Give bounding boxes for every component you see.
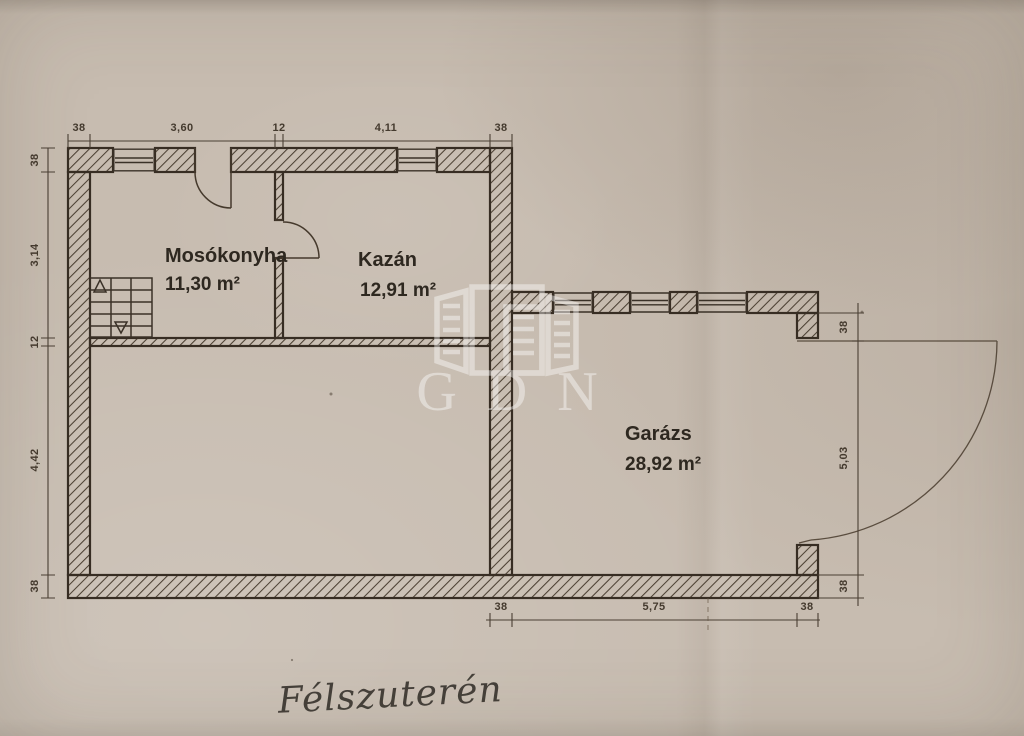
garage-door-swing-arc bbox=[811, 341, 997, 540]
room-label-kazan: Kazán bbox=[358, 249, 417, 271]
dim-label: 12 bbox=[29, 335, 41, 348]
entry-door-swing-arc bbox=[195, 172, 231, 208]
wall-garage-top-pier-2 bbox=[593, 292, 630, 313]
wall-garage-top-corner bbox=[747, 292, 818, 313]
wall-exterior-bottom bbox=[68, 575, 818, 598]
dimension-chain-top: 38 3,60 12 4,11 38 bbox=[68, 122, 512, 148]
paper-speck bbox=[330, 393, 333, 396]
wall-top-middle bbox=[231, 148, 397, 172]
dim-label: 38 bbox=[838, 320, 850, 333]
dim-label: 38 bbox=[29, 579, 41, 592]
room-label-mosokonyha: Mosókonyha bbox=[165, 245, 288, 267]
wall-exterior-left bbox=[68, 172, 90, 575]
watermark-text: GDN bbox=[416, 361, 627, 423]
garage-window-2 bbox=[630, 293, 670, 312]
garage-door bbox=[797, 341, 997, 543]
dimension-chain-bottom: 38 5,75 38 bbox=[486, 598, 820, 633]
dim-label: 4,42 bbox=[29, 448, 41, 471]
window-1 bbox=[113, 149, 155, 171]
entry-door bbox=[195, 148, 231, 208]
scanned-paper-background: 38 3,60 12 4,11 38 38 3,14 12 4,42 38 38… bbox=[0, 0, 1024, 736]
floor-plan-drawing: 38 3,60 12 4,11 38 38 3,14 12 4,42 38 38… bbox=[0, 0, 1024, 736]
wall-garage-right-stub-bottom bbox=[797, 545, 818, 575]
stairs-down-arrow bbox=[115, 322, 127, 333]
wall-top-corner-left bbox=[68, 148, 113, 172]
dim-label: 38 bbox=[494, 601, 507, 613]
dimension-chain-right: 38 5,03 38 bbox=[818, 303, 864, 606]
wall-partition-horizontal bbox=[90, 338, 490, 346]
dim-label: 38 bbox=[838, 579, 850, 592]
wall-garage-right-stub-top bbox=[797, 313, 818, 338]
paper-speck bbox=[291, 659, 293, 661]
kazan-door-swing-arc bbox=[283, 222, 319, 258]
paper-speck bbox=[861, 311, 864, 314]
wall-top-pier-1 bbox=[155, 148, 195, 172]
dimension-chain-left: 38 3,14 12 4,42 38 bbox=[29, 148, 55, 598]
dim-label: 38 bbox=[29, 153, 41, 166]
room-label-garazs: Garázs bbox=[625, 423, 692, 445]
interior-walls bbox=[90, 172, 490, 346]
staircase bbox=[90, 278, 152, 337]
dim-label: 38 bbox=[800, 601, 813, 613]
wall-garage-top-pier-3 bbox=[670, 292, 697, 313]
wall-partition-vertical-upper bbox=[275, 172, 283, 220]
room-area-kazan: 12,91 m² bbox=[360, 280, 436, 301]
handwritten-caption: Félszuterén bbox=[276, 669, 504, 722]
room-area-garazs: 28,92 m² bbox=[625, 454, 701, 475]
dim-label: 5,03 bbox=[838, 446, 850, 469]
dim-label: 12 bbox=[272, 122, 285, 134]
room-labels: Mosókonyha 11,30 m² Kazán 12,91 m² Garáz… bbox=[165, 245, 701, 475]
wall-top-corner-right bbox=[437, 148, 490, 172]
wall-partition-vertical-lower bbox=[275, 258, 283, 338]
dim-label: 38 bbox=[72, 122, 85, 134]
window-2 bbox=[397, 149, 437, 171]
garage-window-3 bbox=[697, 293, 747, 312]
dim-label: 38 bbox=[494, 122, 507, 134]
dim-label: 4,11 bbox=[375, 122, 397, 134]
room-area-mosokonyha: 11,30 m² bbox=[165, 274, 240, 295]
dim-label: 3,14 bbox=[29, 243, 41, 266]
dim-label: 5,75 bbox=[642, 601, 665, 613]
dim-label: 3,60 bbox=[170, 122, 193, 134]
